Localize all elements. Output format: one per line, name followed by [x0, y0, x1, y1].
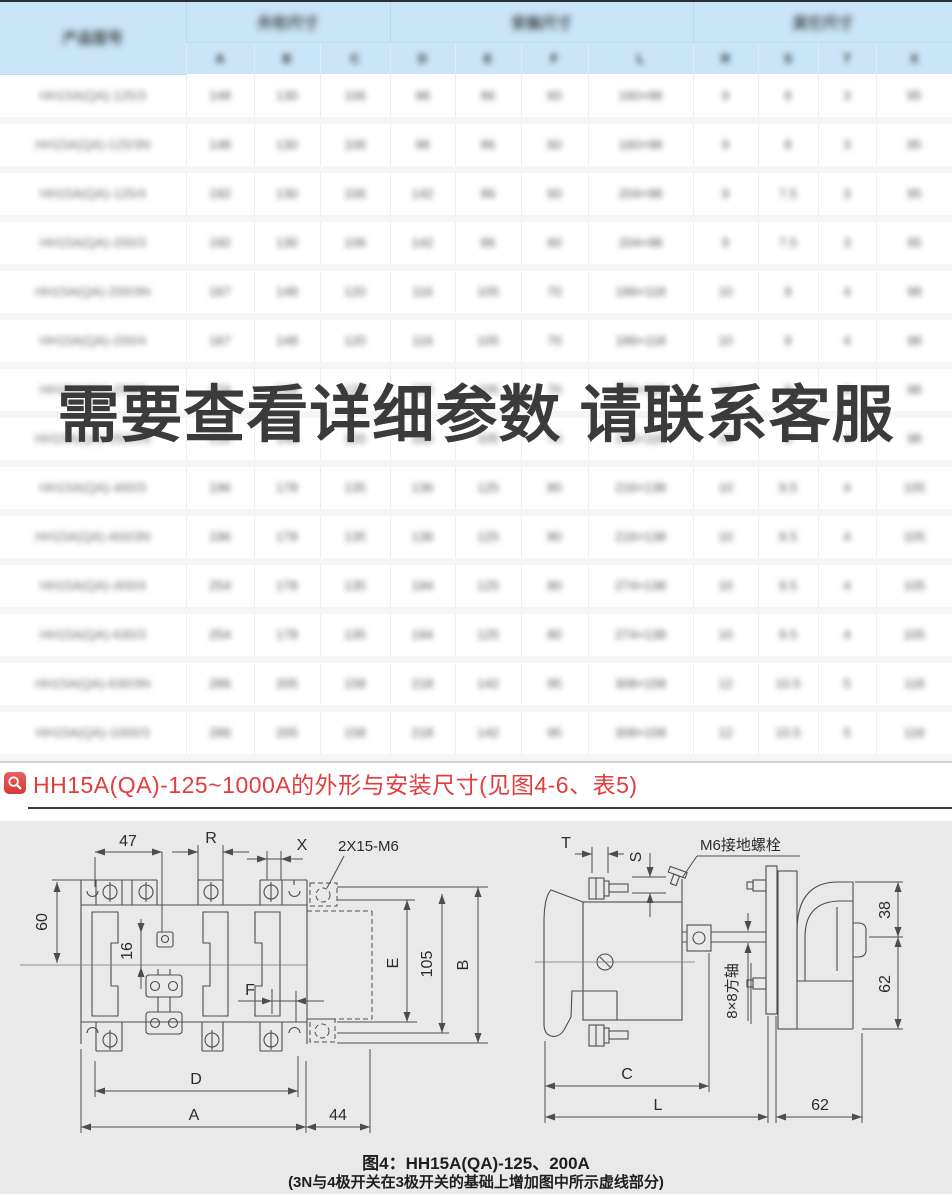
value-cell: 9.5 — [758, 561, 818, 610]
value-cell: 7.5 — [758, 169, 818, 218]
dim-B-label: B — [455, 959, 472, 970]
value-cell: 216×138 — [588, 463, 693, 512]
value-cell: 274×138 — [588, 610, 693, 659]
value-cell: 4 — [818, 267, 876, 316]
value-cell: 194 — [390, 610, 455, 659]
model-cell: HH15A(QA)-400/3N — [0, 512, 186, 561]
contact-service-watermark: 需要查看详细参数 请联系客服 — [57, 364, 894, 454]
value-cell: 205 — [254, 659, 320, 708]
dim-L-label: L — [654, 1097, 663, 1114]
dim-47-label: 47 — [119, 833, 137, 850]
dim-D-label: D — [190, 1071, 202, 1088]
column-group-other: 其它尺寸 — [793, 15, 853, 32]
value-cell: 10 — [693, 267, 758, 316]
value-cell: 218 — [390, 708, 455, 757]
dim-38-label: 38 — [877, 901, 894, 919]
value-cell: 167 — [186, 267, 254, 316]
value-cell: 3 — [818, 74, 876, 120]
table-row: HH15A(QA)-200/3N16714812011610570186×118… — [0, 267, 952, 316]
value-cell: 142 — [390, 218, 455, 267]
value-cell: 4 — [818, 512, 876, 561]
model-cell: HH15A(QA)-125/3N — [0, 120, 186, 169]
value-cell: 135 — [320, 610, 390, 659]
dim-62b-label: 62 — [811, 1097, 829, 1114]
value-cell: 60 — [521, 120, 588, 169]
column-header-A: A — [186, 43, 254, 75]
dim-R-label: R — [205, 830, 217, 847]
value-cell: 9 — [693, 218, 758, 267]
value-cell: 205 — [254, 708, 320, 757]
table-row: HH15A(QA)-1000/328620515821814295308×158… — [0, 708, 952, 757]
table-row: HH15A(QA)-400/425417813519412580274×1381… — [0, 561, 952, 610]
value-cell: 148 — [254, 267, 320, 316]
column-group-outline: 外形尺寸 — [258, 15, 318, 32]
value-cell: 142 — [455, 708, 521, 757]
value-cell: 196 — [186, 463, 254, 512]
value-cell: 60 — [521, 74, 588, 120]
value-cell: 98 — [390, 74, 455, 120]
value-cell: 308×158 — [588, 708, 693, 757]
value-cell: 160×98 — [588, 74, 693, 120]
table-row: HH15A(QA)-630/3N28620515821814295308×158… — [0, 659, 952, 708]
value-cell: 105 — [455, 316, 521, 365]
value-cell: 106 — [320, 74, 390, 120]
value-cell: 95 — [876, 120, 952, 169]
value-cell: 118 — [876, 708, 952, 757]
column-header-B: B — [254, 43, 320, 75]
figure-caption-line2: (3N与4极开关在3极开关的基础上增加图中所示虚线部分) — [0, 1171, 952, 1192]
table-row: HH15A(QA)-125/41921301061428660204×9897.… — [0, 169, 952, 218]
value-cell: 106 — [320, 120, 390, 169]
value-cell: 95 — [876, 74, 952, 120]
value-cell: 178 — [254, 561, 320, 610]
value-cell: 158 — [320, 659, 390, 708]
magnifier-icon — [4, 772, 26, 794]
value-cell: 105 — [876, 463, 952, 512]
value-cell: 136 — [390, 512, 455, 561]
value-cell: 10.5 — [758, 708, 818, 757]
value-cell: 86 — [455, 169, 521, 218]
value-cell: 60 — [521, 169, 588, 218]
column-header-R: R — [693, 43, 758, 75]
dim-16-label: 16 — [119, 942, 136, 960]
model-cell: HH15A(QA)-400/3 — [0, 463, 186, 512]
value-cell: 135 — [320, 561, 390, 610]
value-cell: 254 — [186, 561, 254, 610]
value-cell: 5 — [818, 659, 876, 708]
dim-44-label: 44 — [329, 1107, 347, 1124]
table-row: HH15A(QA)-200/416714812011610570186×1181… — [0, 316, 952, 365]
dimension-drawing-svg: 47 R X 2X15-M6 60 16 — [0, 821, 952, 1143]
dim-A-label: A — [189, 1107, 200, 1124]
value-cell: 9 — [758, 267, 818, 316]
value-cell: 105 — [876, 610, 952, 659]
value-cell: 4 — [818, 610, 876, 659]
value-cell: 98 — [876, 267, 952, 316]
value-cell: 148 — [186, 120, 254, 169]
value-cell: 148 — [254, 316, 320, 365]
value-cell: 120 — [320, 267, 390, 316]
model-cell: HH15A(QA)-630/3 — [0, 610, 186, 659]
dim-60-label: 60 — [34, 913, 51, 931]
model-cell: HH15A(QA)-125/3 — [0, 74, 186, 120]
value-cell: 4 — [818, 316, 876, 365]
value-cell: 130 — [254, 169, 320, 218]
dim-E-label: E — [385, 957, 402, 968]
value-cell: 70 — [521, 267, 588, 316]
value-cell: 10 — [693, 512, 758, 561]
value-cell: 3 — [818, 218, 876, 267]
column-header-E: E — [455, 43, 521, 75]
value-cell: 216×138 — [588, 512, 693, 561]
table-row: HH15A(QA)-125/3148130106988660160×989839… — [0, 74, 952, 120]
dim-T-label: T — [561, 835, 571, 852]
value-cell: 60 — [521, 218, 588, 267]
value-cell: 9 — [693, 120, 758, 169]
value-cell: 8 — [758, 120, 818, 169]
value-cell: 80 — [521, 561, 588, 610]
value-cell: 196 — [186, 512, 254, 561]
table-row: HH15A(QA)-630/325417813519412580274×1381… — [0, 610, 952, 659]
value-cell: 116 — [390, 267, 455, 316]
value-cell: 10 — [693, 463, 758, 512]
model-cell: HH15A(QA)-200/3 — [0, 218, 186, 267]
value-cell: 130 — [254, 218, 320, 267]
value-cell: 142 — [455, 659, 521, 708]
value-cell: 80 — [521, 512, 588, 561]
value-cell: 9 — [693, 74, 758, 120]
value-cell: 116 — [390, 316, 455, 365]
value-cell: 186×118 — [588, 267, 693, 316]
value-cell: 95 — [521, 708, 588, 757]
model-cell: HH15A(QA)-400/4 — [0, 561, 186, 610]
section-divider — [28, 807, 952, 809]
table-row: HH15A(QA)-200/31921301061428660204×9897.… — [0, 218, 952, 267]
model-cell: HH15A(QA)-200/4 — [0, 316, 186, 365]
model-cell: HH15A(QA)-630/3N — [0, 659, 186, 708]
value-cell: 105 — [455, 267, 521, 316]
dimension-diagram: 47 R X 2X15-M6 60 16 — [0, 821, 952, 1194]
value-cell: 178 — [254, 610, 320, 659]
value-cell: 120 — [320, 316, 390, 365]
dim-105-label: 105 — [419, 950, 436, 977]
value-cell: 105 — [876, 561, 952, 610]
dim-X-label: X — [297, 837, 308, 854]
column-header-L: L — [588, 43, 693, 75]
ground-bolt-label: M6接地螺栓 — [700, 837, 781, 854]
value-cell: 106 — [320, 218, 390, 267]
value-cell: 125 — [455, 463, 521, 512]
column-header-C: C — [320, 43, 390, 75]
value-cell: 218 — [390, 659, 455, 708]
value-cell: 86 — [455, 120, 521, 169]
value-cell: 186×118 — [588, 316, 693, 365]
value-cell: 142 — [390, 169, 455, 218]
value-cell: 4 — [818, 561, 876, 610]
value-cell: 204×98 — [588, 169, 693, 218]
front-view-dimensions: 47 R X 2X15-M6 60 16 — [34, 830, 488, 1133]
value-cell: 135 — [320, 463, 390, 512]
shaft-label: 8×8方轴 — [724, 963, 741, 1018]
value-cell: 9.5 — [758, 512, 818, 561]
value-cell: 136 — [390, 463, 455, 512]
value-cell: 118 — [876, 659, 952, 708]
value-cell: 10.5 — [758, 659, 818, 708]
value-cell: 95 — [876, 169, 952, 218]
dim-F-label: F — [245, 982, 255, 999]
value-cell: 12 — [693, 659, 758, 708]
value-cell: 160×98 — [588, 120, 693, 169]
column-group-mounting: 安装尺寸 — [512, 15, 572, 32]
value-cell: 178 — [254, 512, 320, 561]
column-header-S: S — [758, 43, 818, 75]
value-cell: 12 — [693, 708, 758, 757]
value-cell: 148 — [186, 74, 254, 120]
value-cell: 9.5 — [758, 610, 818, 659]
value-cell: 70 — [521, 316, 588, 365]
value-cell: 98 — [390, 120, 455, 169]
dim-62-label: 62 — [877, 975, 894, 993]
value-cell: 80 — [521, 463, 588, 512]
value-cell: 95 — [521, 659, 588, 708]
value-cell: 204×98 — [588, 218, 693, 267]
value-cell: 7.5 — [758, 218, 818, 267]
value-cell: 274×138 — [588, 561, 693, 610]
model-cell: HH15A(QA)-1000/3 — [0, 708, 186, 757]
column-header-T: T — [818, 43, 876, 75]
value-cell: 8 — [758, 74, 818, 120]
value-cell: 9 — [758, 316, 818, 365]
table-row: HH15A(QA)-125/3N148130106988660160×98983… — [0, 120, 952, 169]
value-cell: 130 — [254, 74, 320, 120]
value-cell: 105 — [876, 512, 952, 561]
value-cell: 80 — [521, 610, 588, 659]
spec-table-section: 产品型号 外形尺寸 安装尺寸 其它尺寸 ABCDEFLRSTX HH15A(QA… — [0, 0, 952, 763]
value-cell: 98 — [876, 316, 952, 365]
side-view-outline — [535, 866, 866, 1046]
value-cell: 194 — [390, 561, 455, 610]
dim-S-label: S — [628, 851, 645, 862]
value-cell: 10 — [693, 561, 758, 610]
front-view-dashed-pole — [307, 883, 372, 1042]
value-cell: 5 — [818, 708, 876, 757]
value-cell: 308×158 — [588, 659, 693, 708]
model-cell: HH15A(QA)-200/3N — [0, 267, 186, 316]
value-cell: 130 — [254, 120, 320, 169]
value-cell: 254 — [186, 610, 254, 659]
column-header-F: F — [521, 43, 588, 75]
section-heading: HH15A(QA)-125~1000A的外形与安装尺寸(见图4-6、表5) — [4, 770, 952, 796]
value-cell: 286 — [186, 659, 254, 708]
column-header-model: 产品型号 — [63, 30, 123, 47]
column-header-D: D — [390, 43, 455, 75]
column-header-X: X — [876, 43, 952, 75]
dim-2x15-m6-label: 2X15-M6 — [338, 838, 399, 855]
value-cell: 286 — [186, 708, 254, 757]
value-cell: 3 — [818, 120, 876, 169]
product-spec-page: 产品型号 外形尺寸 安装尺寸 其它尺寸 ABCDEFLRSTX HH15A(QA… — [0, 0, 952, 1195]
value-cell: 10 — [693, 610, 758, 659]
value-cell: 125 — [455, 610, 521, 659]
value-cell: 3 — [818, 169, 876, 218]
value-cell: 125 — [455, 561, 521, 610]
value-cell: 9 — [693, 169, 758, 218]
value-cell: 192 — [186, 218, 254, 267]
section-title: HH15A(QA)-125~1000A的外形与安装尺寸(见图4-6、表5) — [33, 766, 638, 800]
value-cell: 158 — [320, 708, 390, 757]
table-row: HH15A(QA)-400/319617813513612580216×1381… — [0, 463, 952, 512]
value-cell: 167 — [186, 316, 254, 365]
value-cell: 135 — [320, 512, 390, 561]
value-cell: 95 — [876, 218, 952, 267]
value-cell: 192 — [186, 169, 254, 218]
value-cell: 86 — [455, 218, 521, 267]
front-view-outline — [20, 880, 307, 1051]
value-cell: 4 — [818, 463, 876, 512]
value-cell: 86 — [455, 74, 521, 120]
value-cell: 106 — [320, 169, 390, 218]
dim-C-label: C — [621, 1066, 633, 1083]
value-cell: 125 — [455, 512, 521, 561]
value-cell: 178 — [254, 463, 320, 512]
table-row: HH15A(QA)-400/3N19617813513612580216×138… — [0, 512, 952, 561]
value-cell: 10 — [693, 316, 758, 365]
model-cell: HH15A(QA)-125/4 — [0, 169, 186, 218]
value-cell: 9.5 — [758, 463, 818, 512]
